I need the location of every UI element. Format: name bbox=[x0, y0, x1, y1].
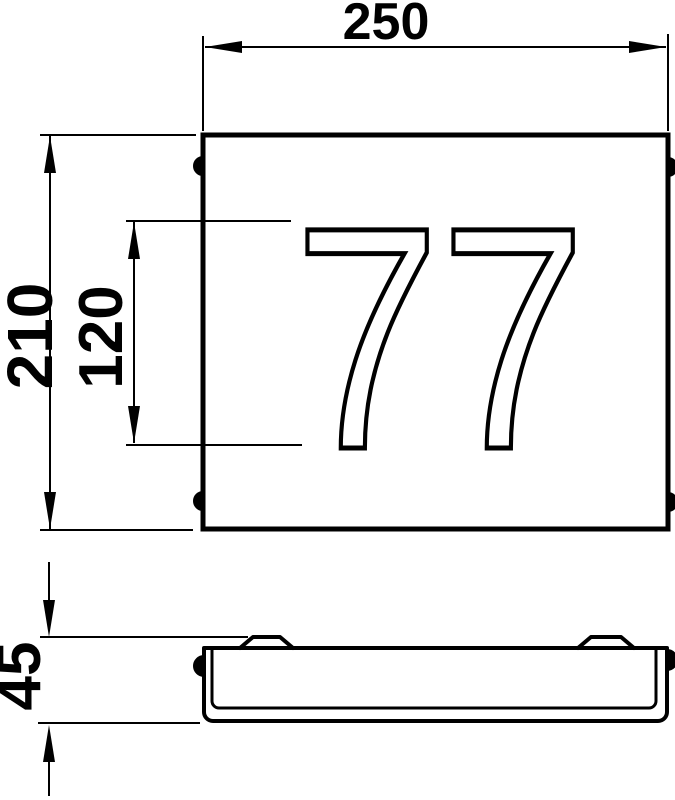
dimension-label-depth: 45 bbox=[0, 642, 54, 711]
house-number-sign-drawing: 77 250 bbox=[0, 0, 675, 800]
arrow-left-icon bbox=[205, 41, 242, 53]
arrow-down-icon bbox=[44, 492, 56, 529]
arrow-up-icon bbox=[128, 222, 140, 259]
front-view: 77 bbox=[194, 135, 675, 529]
arrow-down-icon bbox=[128, 406, 140, 443]
arrow-up-icon bbox=[43, 725, 55, 762]
side-view bbox=[194, 637, 675, 721]
technical-drawing-page: 77 250 bbox=[0, 0, 675, 800]
side-profile-outline bbox=[204, 648, 667, 721]
side-profile-inner-wall bbox=[212, 650, 656, 708]
dimension-label-height: 210 bbox=[0, 283, 66, 390]
digit-height-dimension-120: 120 bbox=[67, 221, 302, 445]
dimension-label-width: 250 bbox=[343, 0, 430, 51]
house-number-cutout: 77 bbox=[294, 162, 586, 516]
dimension-label-digit-height: 120 bbox=[67, 285, 136, 388]
arrow-up-icon bbox=[44, 136, 56, 173]
arrow-right-icon bbox=[629, 41, 666, 53]
arrow-down-icon bbox=[43, 600, 55, 637]
width-dimension-250: 250 bbox=[203, 0, 668, 131]
